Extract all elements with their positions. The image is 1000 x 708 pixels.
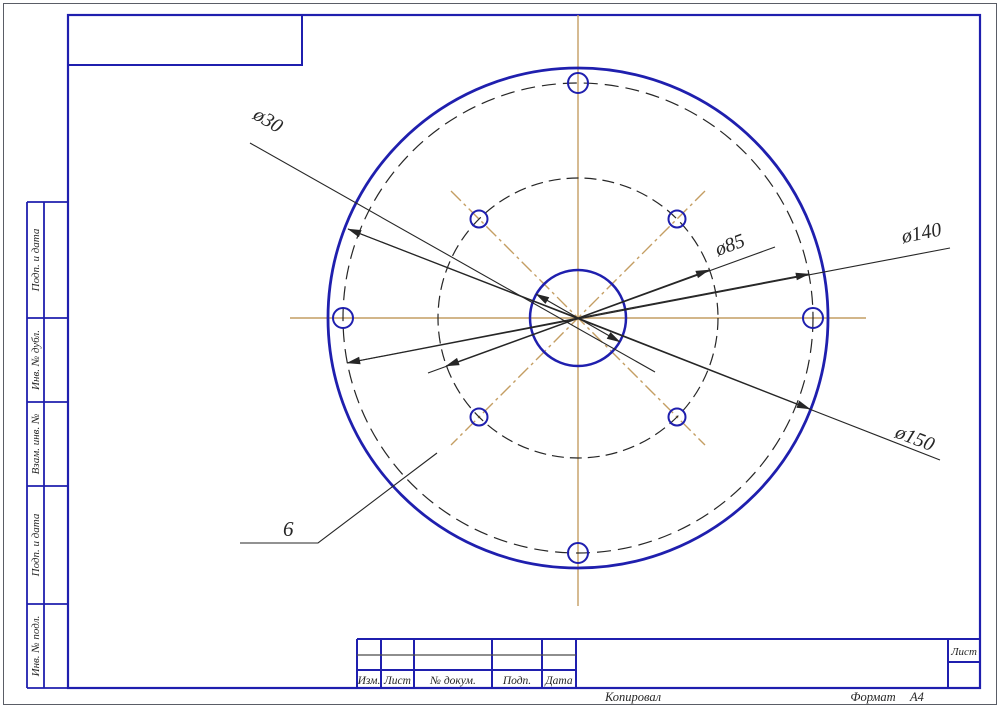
side-label-podp-i-data-1: Подп. и дата	[30, 228, 42, 292]
side-label-vzam-inv: Взам. инв. №	[30, 414, 42, 475]
drawing-frame	[68, 15, 980, 688]
copied-by-label: Копировал	[604, 690, 662, 704]
titleblock-col-dokum: № докум.	[429, 675, 476, 687]
dim-label-140: ø140	[899, 219, 943, 248]
titleblock-col-podp: Подп.	[502, 675, 531, 687]
side-label-podp-i-data-2: Подп. и дата	[30, 513, 42, 577]
dim-label-thickness: 6	[283, 517, 294, 541]
left-stamp-labels: Подп. и дата Инв. № дубл. Взам. инв. № П…	[30, 228, 42, 677]
format-label: Формат	[850, 690, 895, 704]
titleblock-col-list: Лист	[383, 675, 411, 687]
footer-annotations: Копировал Формат А4	[604, 690, 924, 704]
dim-label-85: ø85	[711, 230, 748, 261]
drawing-canvas: Подп. и дата Инв. № дубл. Взам. инв. № П…	[0, 0, 1000, 708]
hole-upper-right	[669, 211, 686, 228]
dim-line-30	[250, 143, 655, 372]
dimension-lines	[240, 143, 950, 543]
side-label-inv-dubl: Инв. № дубл.	[30, 330, 42, 391]
dim-label-150: ø150	[891, 421, 937, 456]
side-label-inv-podl: Инв. № подл.	[30, 616, 42, 678]
titleblock-col-data: Дата	[544, 675, 573, 687]
sheet-number-label: Лист	[950, 646, 977, 658]
titleblock-col-izm: Изм.	[357, 675, 381, 687]
leader-line-thickness	[240, 453, 437, 543]
page-border	[4, 4, 997, 705]
engineering-drawing-sheet: Подп. и дата Инв. № дубл. Взам. инв. № П…	[0, 0, 1000, 708]
format-value: А4	[909, 690, 924, 704]
dim-label-30: ø30	[249, 103, 287, 138]
title-block: Изм. Лист № докум. Подп. Дата Лист	[357, 639, 980, 688]
centerlines	[290, 15, 866, 606]
